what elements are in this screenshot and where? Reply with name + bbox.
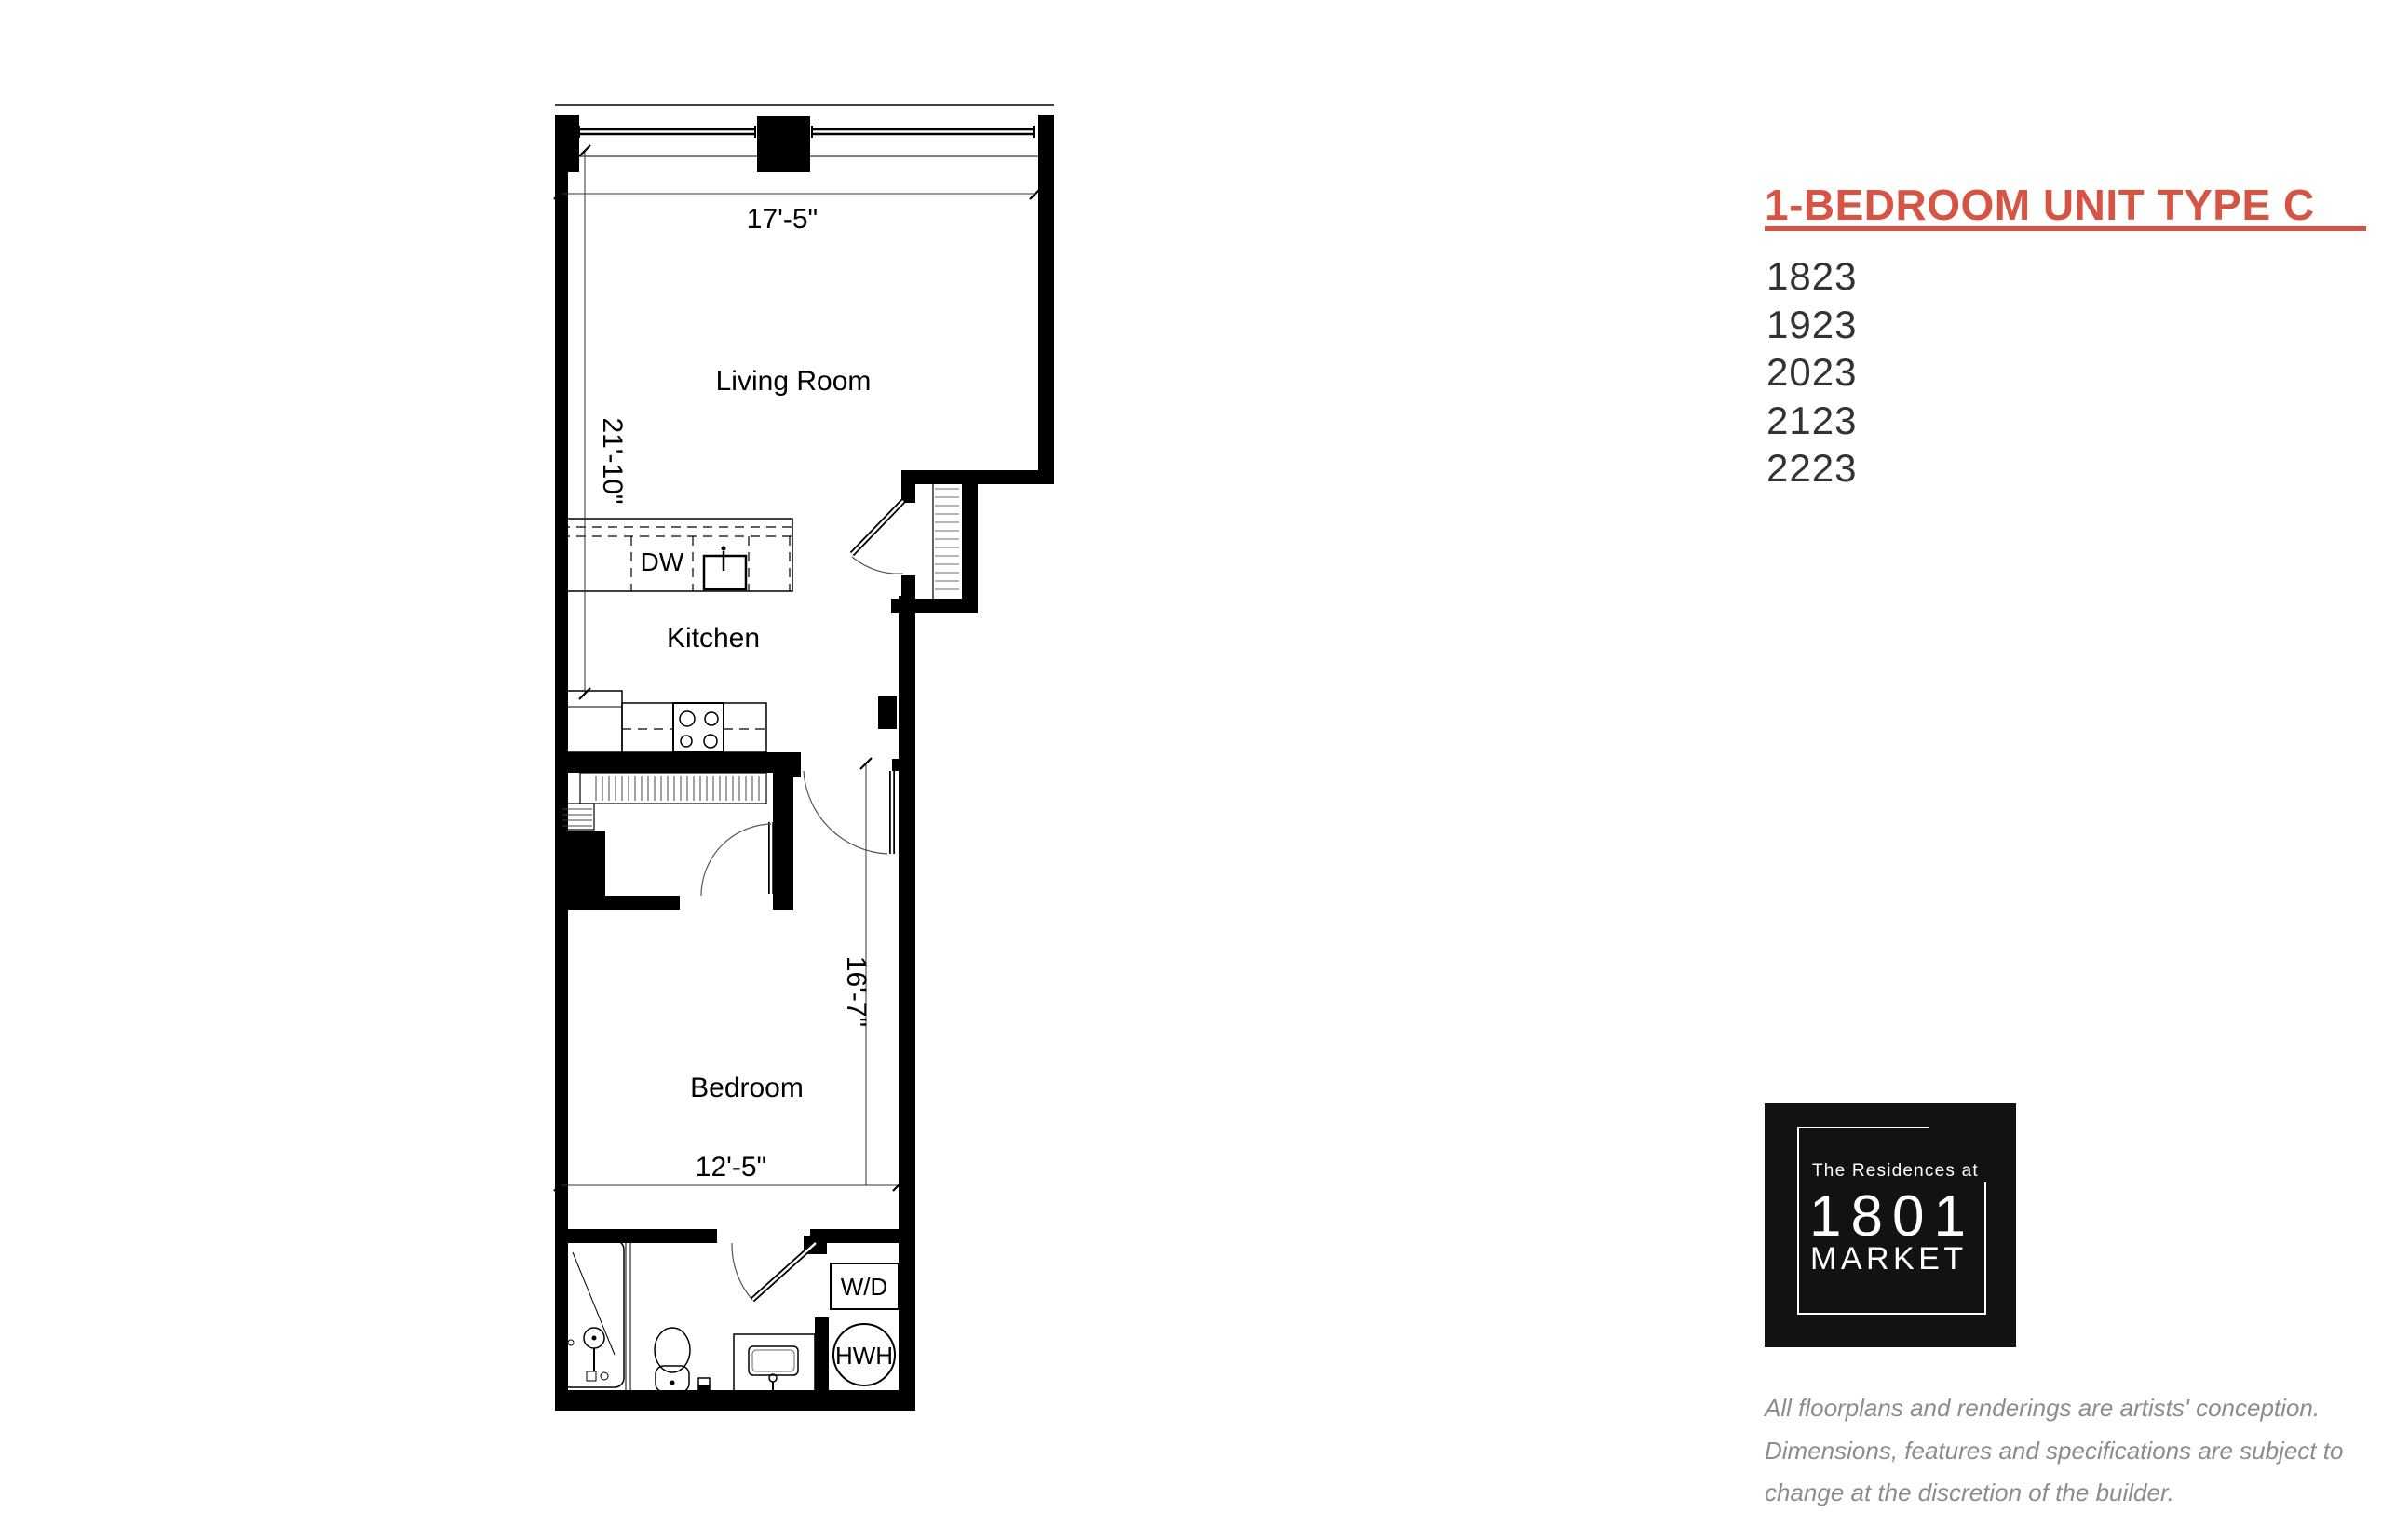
toilet	[655, 1328, 690, 1392]
floorplan-drawing: 17'-5" 21'-10" 16'-7" 12'-5" Living Room…	[540, 98, 1080, 1439]
unit-number: 1823	[1766, 252, 1857, 301]
entry-door	[852, 501, 903, 574]
bathtub	[561, 1240, 630, 1392]
room-label-kitchen: Kitchen	[667, 623, 760, 654]
fridge	[563, 691, 622, 752]
logo-frame-left	[1797, 1127, 1799, 1315]
page-title: 1-BEDROOM UNIT TYPE C	[1765, 180, 2379, 230]
disclaimer-line: Dimensions, features and specifications …	[1765, 1430, 2379, 1473]
dim-unit-depth	[579, 145, 590, 699]
hanger-hatch	[596, 776, 759, 801]
dim-label-unit-depth: 21'-10"	[597, 417, 628, 504]
stove	[673, 703, 724, 752]
unit-number: 1923	[1766, 301, 1857, 349]
logo-frame-bottom	[1797, 1313, 1986, 1315]
dim-label-bedroom-depth: 16'-7"	[841, 956, 872, 1027]
room-label-bedroom: Bedroom	[690, 1073, 804, 1103]
unit-number: 2123	[1766, 397, 1857, 445]
kitchen-counter	[563, 691, 766, 752]
unit-number-list: 1823 1923 2023 2123 2223	[1766, 252, 1857, 493]
bedroom-closet	[561, 773, 766, 830]
bedroom-closet-door	[701, 822, 771, 896]
title-underline	[1765, 226, 2366, 231]
label-water-heater: HWH	[835, 1342, 893, 1370]
brand-logo: The Residences at 1801 MARKET	[1765, 1103, 2016, 1347]
logo-number: 1801	[1809, 1183, 1975, 1250]
vanity-sink	[734, 1334, 815, 1392]
info-panel: 1-BEDROOM UNIT TYPE C 1823 1923 2023 212…	[1765, 0, 2379, 1540]
unit-number: 2023	[1766, 348, 1857, 397]
dim-label-living-width: 17'-5"	[747, 204, 818, 235]
room-label-living: Living Room	[716, 366, 872, 397]
disclaimer-line: All floorplans and renderings are artist…	[1765, 1387, 2379, 1430]
dim-living-width	[554, 188, 1041, 199]
logo-name: MARKET	[1810, 1241, 1968, 1277]
bathroom-door	[732, 1243, 816, 1300]
logo-tagline: The Residences at	[1812, 1161, 1979, 1182]
logo-frame-right	[1984, 1182, 1986, 1315]
dimensions	[554, 145, 1041, 1191]
hall-door	[804, 771, 892, 854]
toilet-paper-holder	[698, 1378, 710, 1392]
walls	[555, 115, 1054, 1411]
disclaimer: All floorplans and renderings are artist…	[1765, 1387, 2379, 1515]
unit-number: 2223	[1766, 444, 1857, 493]
logo-frame-top	[1797, 1127, 1929, 1128]
label-washer-dryer: W/D	[841, 1273, 888, 1301]
closet-hatch	[935, 489, 959, 589]
disclaimer-line: change at the discretion of the builder.	[1765, 1472, 2379, 1515]
entry-closet	[933, 482, 959, 599]
dim-label-bedroom-width: 12'-5"	[696, 1152, 766, 1182]
kitchen-sink	[704, 547, 746, 590]
page: 17'-5" 21'-10" 16'-7" 12'-5" Living Room…	[0, 0, 2382, 1540]
label-dishwasher: DW	[641, 547, 684, 576]
